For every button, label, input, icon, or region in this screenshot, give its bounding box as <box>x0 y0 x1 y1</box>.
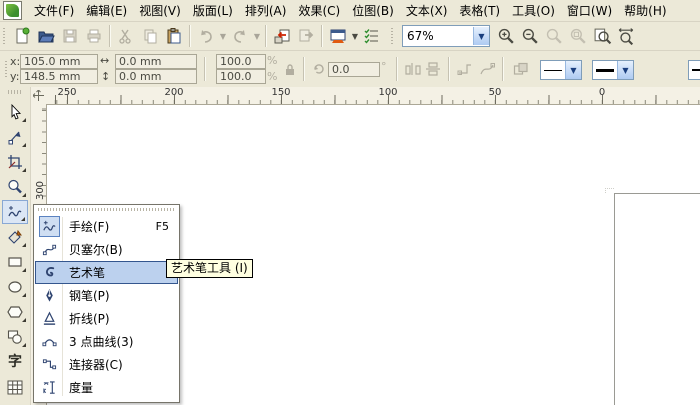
flyout-item-label: 连接器(C) <box>63 356 123 373</box>
zoom-in-icon <box>497 27 516 46</box>
zoom-level-combo[interactable]: 67% ▼ <box>402 25 490 47</box>
ellipse-tool-icon <box>7 279 23 295</box>
outline-width-combo[interactable]: ▼ <box>592 60 634 80</box>
zoom-selected-icon <box>569 27 588 46</box>
flyout-item-label: 手绘(F) <box>63 218 109 235</box>
toolbar-separator <box>189 25 191 47</box>
undo-dropdown-arrow[interactable]: ▼ <box>218 24 228 48</box>
menu-file[interactable]: 文件(F) <box>28 0 80 21</box>
text-tool-button[interactable]: 字 <box>2 350 28 374</box>
standard-toolbar: ▼ ▼ ▼ <box>0 22 700 51</box>
zoom-in-button[interactable] <box>494 24 518 48</box>
shape-tool-icon <box>7 129 23 145</box>
menu-arrange[interactable]: 排列(A) <box>239 0 293 21</box>
pick-tool-button[interactable] <box>2 100 28 124</box>
menu-bitmaps[interactable]: 位图(B) <box>346 0 400 21</box>
open-folder-icon <box>37 27 55 45</box>
scale-h-field[interactable]: 100.0 <box>216 54 266 69</box>
pen-menu-icon <box>42 288 57 303</box>
lock-ratio-button[interactable] <box>281 60 299 78</box>
flyout-grip[interactable] <box>38 208 175 211</box>
zoom-width-button[interactable] <box>614 24 638 48</box>
table-tool-button[interactable] <box>2 375 28 399</box>
rotation-angle-field[interactable]: 0.0 <box>328 62 380 77</box>
pick-tool-icon <box>8 104 23 120</box>
print-button[interactable] <box>82 24 106 48</box>
current-tool-selected-box <box>39 216 60 237</box>
outline-width-dropdown-arrow[interactable]: ▼ <box>617 61 633 79</box>
outline-style-combo[interactable]: ▼ <box>540 60 582 80</box>
edge-combo-sample <box>689 69 700 71</box>
save-button[interactable] <box>58 24 82 48</box>
degree-label: ° <box>381 60 387 73</box>
flyout-triangle <box>22 118 26 122</box>
freehand-tool-button[interactable] <box>2 200 28 224</box>
menu-layout[interactable]: 版面(L) <box>187 0 239 21</box>
vruler-label: 300 <box>35 181 46 200</box>
smart-fill-tool-icon <box>7 229 23 245</box>
flyout-triangle <box>22 143 26 147</box>
convert-curve-button[interactable] <box>478 60 496 78</box>
menu-bar: 文件(F) 编辑(E) 视图(V) 版面(L) 排列(A) 效果(C) 位图(B… <box>0 0 700 22</box>
flyout-item-connector[interactable]: 连接器(C) <box>35 353 178 376</box>
property-separator <box>303 57 305 81</box>
connector-menu-icon <box>42 357 57 372</box>
flyout-item-label: 艺术笔 <box>63 264 105 281</box>
property-bar-grip[interactable] <box>4 59 9 79</box>
toolbox-grip[interactable] <box>8 90 22 94</box>
cut-icon <box>117 27 135 45</box>
coreldraw-app-icon[interactable] <box>3 1 22 20</box>
cut-button[interactable] <box>114 24 138 48</box>
zoom-selected-button[interactable] <box>566 24 590 48</box>
flyout-item-freehand[interactable]: 手绘(F) F5 <box>35 215 178 238</box>
flyout-item-artistic-media[interactable]: 艺术笔 I <box>35 261 178 284</box>
flyout-item-label: 贝塞尔(B) <box>63 241 123 258</box>
text-tool-icon: 字 <box>8 355 22 369</box>
menu-help[interactable]: 帮助(H) <box>618 0 672 21</box>
coreldraw-window: 文件(F) 编辑(E) 视图(V) 版面(L) 排列(A) 效果(C) 位图(B… <box>0 0 700 405</box>
undo-icon <box>197 27 215 45</box>
hruler-label: 200 <box>164 87 183 98</box>
flyout-item-shortcut: F5 <box>156 220 178 233</box>
rotate-icon <box>310 60 328 78</box>
save-icon <box>61 27 79 45</box>
options-icon <box>363 27 381 45</box>
copy-icon <box>141 27 159 45</box>
flyout-item-dimension[interactable]: 度量 <box>35 376 178 399</box>
copy-button[interactable] <box>138 24 162 48</box>
ruler-crosshair-icon <box>33 90 44 101</box>
x-label: x: <box>10 55 20 68</box>
flyout-item-3-point-curve[interactable]: 3 点曲线(3) <box>35 330 178 353</box>
hruler-label: 250 <box>57 87 76 98</box>
property-bar: x: 105.0 mm y: 148.5 mm ↔ 0.0 mm ↕ 0.0 m… <box>0 51 700 88</box>
menu-effects[interactable]: 效果(C) <box>292 0 346 21</box>
polygon-tool-icon <box>7 304 23 320</box>
lock-icon <box>284 63 296 76</box>
page-border-left <box>614 193 615 405</box>
flyout-item-label: 3 点曲线(3) <box>63 333 133 350</box>
import-button[interactable] <box>270 24 294 48</box>
width-arrows-icon: ↔ <box>100 54 109 67</box>
zoom-page-icon <box>593 27 612 46</box>
flyout-triangle <box>22 293 26 297</box>
zoom-combo-dropdown-arrow[interactable]: ▼ <box>473 27 489 45</box>
app-launcher-icon <box>328 26 348 46</box>
new-document-icon <box>13 27 31 45</box>
page-border-top <box>614 193 700 194</box>
x-position-field[interactable]: 105.0 mm <box>20 54 98 69</box>
print-icon <box>85 27 103 45</box>
menu-tools[interactable]: 工具(O) <box>506 0 561 21</box>
flyout-item-pen[interactable]: 钢笔(P) <box>35 284 178 307</box>
zoom-level-value: 67% <box>403 29 473 43</box>
tooltip: 艺术笔工具 (I) <box>166 259 253 278</box>
paste-button[interactable] <box>162 24 186 48</box>
dimension-menu-icon <box>42 380 57 395</box>
options-button[interactable] <box>360 24 384 48</box>
new-document-button[interactable] <box>10 24 34 48</box>
flyout-item-label: 钢笔(P) <box>63 287 110 304</box>
menu-edit[interactable]: 编辑(E) <box>80 0 133 21</box>
zoom-page-button[interactable] <box>590 24 614 48</box>
outline-width-sample <box>593 69 617 72</box>
menu-text[interactable]: 文本(X) <box>400 0 454 21</box>
property-separator <box>502 57 504 81</box>
mirror-vertical-button[interactable] <box>424 60 442 78</box>
zoom-actual-button[interactable] <box>542 24 566 48</box>
launcher-dropdown-arrow[interactable]: ▼ <box>350 24 360 48</box>
zoom-tool-button[interactable] <box>2 175 28 199</box>
property-separator <box>396 57 398 81</box>
flyout-item-bezier[interactable]: 贝塞尔(B) <box>35 238 178 261</box>
rectangle-tool-icon <box>7 254 23 270</box>
scale-v-field[interactable]: 100.0 <box>216 69 266 84</box>
property-separator <box>448 57 450 81</box>
basic-shapes-tool-button[interactable] <box>2 325 28 349</box>
height-arrows-icon: ↕ <box>101 70 110 83</box>
object-height-field[interactable]: 0.0 mm <box>115 69 197 84</box>
y-label: y: <box>10 70 19 83</box>
horizontal-ruler[interactable]: 250 200 150 100 50 0 <box>46 87 700 105</box>
import-icon <box>273 27 291 45</box>
edge-combo-partial[interactable] <box>688 60 700 80</box>
three-point-curve-menu-icon <box>42 334 57 349</box>
app-launcher-button[interactable] <box>326 24 350 48</box>
curve-tools-flyout-menu: 手绘(F) F5 贝塞尔(B) 艺术笔 I <box>33 204 180 403</box>
hruler-label: 0 <box>599 87 605 98</box>
object-width-field[interactable]: 0.0 mm <box>115 54 197 69</box>
toolbox: 字 <box>0 87 31 405</box>
smart-fill-tool-button[interactable] <box>2 225 28 249</box>
ruler-origin-button[interactable] <box>30 87 47 105</box>
toolbar-separator <box>265 25 267 47</box>
zoom-width-icon <box>617 27 636 46</box>
flyout-triangle <box>22 193 26 197</box>
bezier-menu-icon <box>42 242 57 257</box>
hruler-label: 100 <box>378 87 397 98</box>
freehand-menu-icon <box>42 219 57 234</box>
toolbar-grip[interactable] <box>390 26 395 46</box>
combine-shapes-button[interactable] <box>512 60 530 78</box>
polygon-tool-button[interactable] <box>2 300 28 324</box>
artistic-media-menu-icon <box>42 265 57 280</box>
redo-icon <box>231 27 249 45</box>
basic-shapes-tool-icon <box>7 329 23 345</box>
outline-style-sample <box>541 70 565 71</box>
flyout-triangle <box>22 268 26 272</box>
flyout-triangle <box>21 217 25 221</box>
outline-style-dropdown-arrow[interactable]: ▼ <box>565 61 581 79</box>
zoom-actual-icon <box>545 27 564 46</box>
undo-button[interactable] <box>194 24 218 48</box>
zoom-out-button[interactable] <box>518 24 542 48</box>
table-tool-icon <box>7 380 23 395</box>
hruler-label: 150 <box>271 87 290 98</box>
shape-tool-button[interactable] <box>2 125 28 149</box>
menu-view[interactable]: 视图(V) <box>133 0 187 21</box>
property-separator <box>204 57 206 81</box>
toolbar-grip[interactable] <box>2 26 7 46</box>
toolbar-separator <box>321 25 323 47</box>
flyout-item-label: 度量 <box>63 379 93 396</box>
flyout-item-polyline[interactable]: 折线(P) <box>35 307 178 330</box>
rectangle-tool-button[interactable] <box>2 250 28 274</box>
flyout-triangle <box>22 243 26 247</box>
menu-table[interactable]: 表格(T) <box>453 0 506 21</box>
zoom-tool-icon <box>7 179 23 195</box>
zoom-out-icon <box>521 27 540 46</box>
ellipse-tool-button[interactable] <box>2 275 28 299</box>
crop-tool-button[interactable] <box>2 150 28 174</box>
percent-v-label: % <box>267 70 277 83</box>
polyline-menu-icon <box>42 311 57 326</box>
node-edit-button[interactable] <box>456 60 474 78</box>
flyout-triangle <box>22 318 26 322</box>
export-button[interactable] <box>294 24 318 48</box>
page-bleed-marks <box>605 188 614 193</box>
percent-h-label: % <box>267 54 277 67</box>
export-icon <box>297 27 315 45</box>
flyout-item-label: 折线(P) <box>63 310 110 327</box>
flyout-triangle <box>22 168 26 172</box>
menu-window[interactable]: 窗口(W) <box>561 0 618 21</box>
hruler-label: 50 <box>489 87 502 98</box>
mirror-horizontal-button[interactable] <box>404 60 422 78</box>
redo-dropdown-arrow[interactable]: ▼ <box>252 24 262 48</box>
y-position-field[interactable]: 148.5 mm <box>20 69 98 84</box>
redo-button[interactable] <box>228 24 252 48</box>
toolbar-separator <box>109 25 111 47</box>
open-button[interactable] <box>34 24 58 48</box>
paste-icon <box>165 27 183 45</box>
crop-tool-icon <box>7 154 23 170</box>
flyout-triangle <box>22 343 26 347</box>
